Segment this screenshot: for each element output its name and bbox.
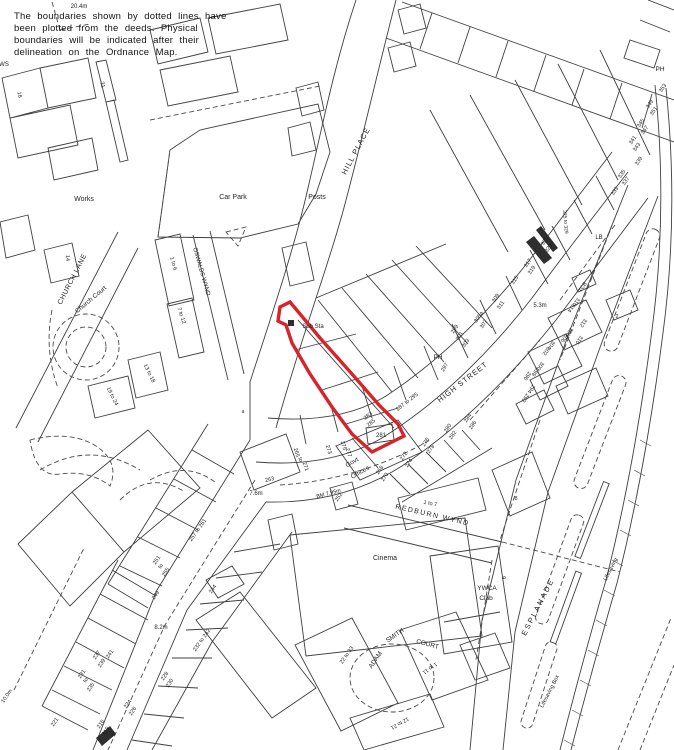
road-network-lines — [16, 0, 658, 750]
street-label-hill-place: HILL PLACE — [340, 126, 372, 176]
map-label: 14 — [64, 255, 70, 261]
map-label: 325 to 329 — [561, 210, 569, 234]
map-label: 310 — [574, 334, 584, 345]
map-label: 1 to 7 — [423, 500, 438, 509]
place-label-ywca-club: YWCA — [477, 585, 497, 592]
map-label: 315 — [510, 275, 520, 286]
place-label-ph: PH — [433, 354, 442, 361]
map-label: 265 — [292, 447, 301, 458]
map-label: 22 to 33 — [339, 646, 355, 666]
place-label-church-court: Church Court — [74, 285, 108, 315]
spot-height: 10.0m — [0, 688, 14, 704]
traffic-island-dashes — [602, 227, 662, 353]
map-label: 339 — [634, 156, 644, 167]
place-label-lifesaving-box: Lifesaving — [603, 557, 620, 582]
map-label: WS — [0, 62, 9, 68]
map-label: 221 — [50, 717, 60, 728]
church-court-circle-outer — [53, 314, 119, 380]
disclaimer-line: boundaries will be indicated after their — [14, 35, 274, 47]
map-label: 239 — [97, 658, 107, 669]
map-canvas: HILL PLACEHIGH STREETCHURCH LANEChurch C… — [0, 0, 674, 750]
map-label: 312 — [578, 317, 588, 328]
plot-number-281: 281 — [376, 433, 387, 439]
map-label: 277 — [344, 447, 353, 458]
traffic-island-dashes — [572, 373, 628, 490]
street-label-oswalds-wynd: OSWALDS WYND — [191, 247, 211, 297]
place-label-cinema: Cinema — [373, 555, 397, 562]
map-extract: HILL PLACEHIGH STREETCHURCH LANEChurch C… — [0, 0, 674, 750]
map-label: 232 to 242 — [192, 628, 212, 653]
disclaimer-line: delineation on the Ordnance Map. — [14, 47, 274, 59]
map-label: 249 — [151, 590, 161, 601]
map-label: 273 — [324, 444, 333, 455]
map-label: 294 — [526, 383, 536, 394]
place-label-ph: PH — [655, 66, 664, 73]
disclaimer-line: been plotted from the deeds. Physical — [14, 23, 274, 35]
place-label-lifesaving-box: Lifesaving Box — [539, 674, 561, 709]
map-label: 287 to 295 — [395, 392, 419, 413]
map-label: 8 — [514, 496, 517, 502]
place-label-works: Works — [74, 196, 94, 203]
map-label: 1 to 6 — [168, 256, 178, 271]
sub-sta-icon — [288, 320, 294, 326]
place-label-car-park: Car Park — [219, 194, 247, 201]
map-label: 257 to 261 — [188, 518, 208, 543]
map-label: 9 — [500, 576, 506, 580]
disclaimer-line: The boundaries shown by dotted lines hav… — [14, 11, 274, 23]
spot-height: 8.2m — [154, 625, 167, 631]
map-label: 1 to 11 — [421, 661, 438, 675]
map-label: a — [242, 409, 245, 415]
map-labels-layer: HILL PLACEHIGH STREETCHURCH LANEChurch C… — [0, 4, 668, 737]
map-label: 16 — [15, 91, 22, 98]
map-label: 2 — [615, 314, 618, 320]
map-label: 19 to 24 — [105, 386, 119, 407]
map-label: 7 to 12 — [175, 307, 186, 325]
filled-building-marks — [96, 226, 558, 746]
place-label-lb: LB — [595, 235, 602, 241]
street-label-esplanade: ESPLANADE — [519, 577, 556, 637]
dashed-boundary-lines — [14, 2, 674, 750]
spot-height: 7.6m — [249, 491, 262, 497]
sea-wall-lines — [560, 85, 672, 750]
building-outlines-northwest — [0, 4, 426, 418]
map-label: to — [82, 677, 90, 684]
map-label: 311 — [496, 300, 506, 311]
boundary-disclaimer: The boundaries shown by dotted lines hav… — [14, 11, 274, 60]
promenade-shelter — [575, 482, 609, 559]
map-label: 31 — [98, 81, 105, 88]
map-label: 241 — [105, 649, 115, 660]
map-label: 333 — [610, 186, 620, 197]
map-label: 297 — [440, 362, 450, 373]
map-label: 271 — [301, 461, 310, 472]
street-label-adam-smith-court: ADAM — [368, 650, 385, 669]
map-label: 12 to 21 — [389, 715, 409, 730]
spot-height: 5.3m — [533, 303, 546, 309]
place-label-sub-sta: Sub Sta — [302, 324, 324, 330]
place-label-posts: Posts — [308, 194, 326, 201]
place-label-ywca-club: Club — [479, 595, 493, 602]
street-label-adam-smith-court: COURT — [415, 638, 439, 651]
adam-smith-courtyard — [350, 644, 434, 712]
church-court-circle — [66, 327, 106, 367]
map-label: 13 to 18 — [142, 363, 156, 384]
spot-height: 20.4m — [71, 4, 88, 10]
map-label: 303 — [461, 338, 471, 349]
subject-property-outline — [278, 302, 404, 452]
place-label-govt-offices: Govt — [345, 456, 361, 469]
place-label-govt-offices: Offices — [350, 464, 372, 480]
